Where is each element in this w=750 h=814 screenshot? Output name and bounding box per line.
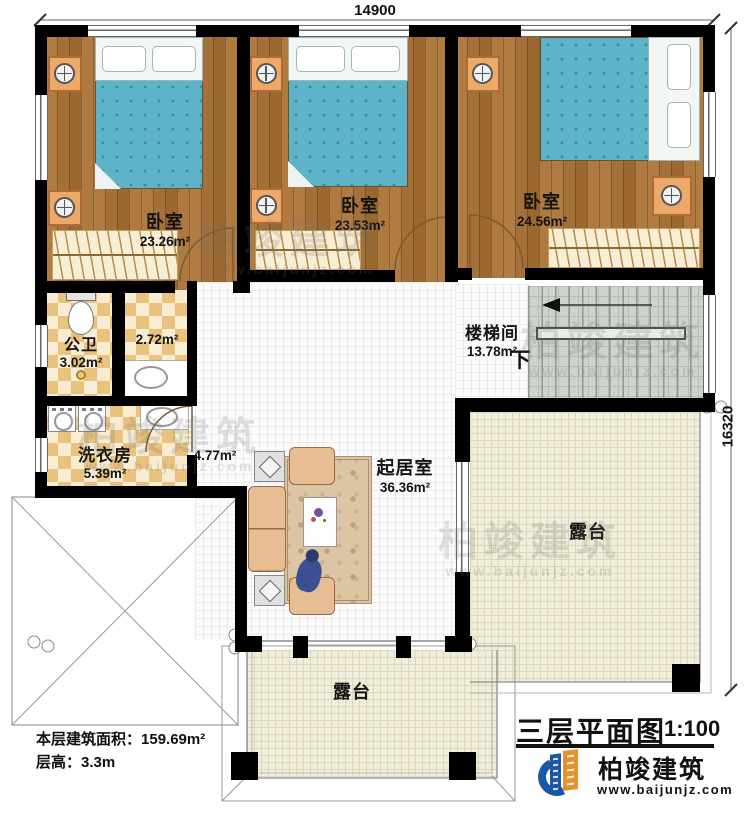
bedroom2-name: 卧室: [310, 196, 410, 218]
wall-living-east: [455, 412, 470, 462]
brand-name: 柏竣建筑: [598, 750, 706, 786]
wardrobe: [548, 228, 700, 268]
watermark-brand: 柏竣建筑: [40, 415, 300, 459]
watermark-url: www.baijunjz.com: [140, 262, 440, 277]
wall-bed1-south: [233, 281, 250, 293]
floor-area-line: 本层建筑面积：159.69m²: [36, 728, 266, 751]
watermark: 柏竣建筑 www.baijunjz.com: [40, 415, 300, 474]
pillow: [296, 46, 345, 72]
floor-area-label: 本层建筑面积：: [36, 731, 141, 748]
window: [88, 25, 196, 37]
window: [35, 95, 48, 180]
title-underline: [516, 744, 714, 748]
lamp-table: [254, 575, 285, 606]
floor-drain-icon: [76, 370, 86, 380]
nightstand: [652, 176, 692, 216]
plant-icon: [472, 63, 493, 84]
watermark-brand: 柏竣建筑: [140, 218, 440, 262]
pillow: [667, 102, 691, 148]
living-room-area: 36.36m²: [355, 480, 455, 496]
wall-bed3-south: [525, 268, 715, 280]
plant-icon: [661, 185, 682, 206]
bathroom-label: 公卫 3.02m²: [51, 336, 111, 371]
pillow: [667, 44, 691, 90]
wall-living-south-pier: [293, 636, 308, 658]
logo-building-blue: [550, 753, 561, 791]
brand-website: www.baijunjz.com: [597, 782, 733, 797]
wall-living-west: [235, 486, 247, 650]
floor-height-value: 3.3m: [81, 754, 115, 771]
floor-info: 本层建筑面积：159.69m² 层高：3.3m: [36, 728, 266, 775]
window: [35, 325, 48, 367]
living-room-name: 起居室: [355, 458, 455, 480]
pillow: [152, 46, 196, 72]
wall-laundry-south: [35, 486, 247, 498]
floor-height-label: 层高：: [36, 754, 81, 771]
nightstand: [466, 56, 500, 92]
wall-living-south-pier: [445, 636, 472, 652]
watermark-brand: 柏竣建筑: [468, 320, 750, 364]
wall-living-south-pier: [396, 636, 411, 658]
floor-plan: 14900 16320 卧室 23.26m² 卧室 23.53m² 卧室 24.…: [0, 0, 750, 814]
terrace-column: [672, 664, 700, 692]
nightstand: [48, 190, 82, 226]
watermark: 柏竣建筑 www.baijunjz.com: [380, 520, 680, 579]
plant-icon: [54, 197, 75, 218]
window: [703, 92, 716, 177]
toilet-icon: [68, 301, 94, 335]
washroom-label: 2.72m²: [127, 332, 187, 348]
watermark-url: www.baijunjz.com: [380, 564, 680, 579]
wall-bed3-south: [455, 268, 472, 280]
dimension-top: 14900: [340, 2, 410, 19]
logo-building-orange: [563, 749, 578, 791]
floor-height-line: 层高：3.3m: [36, 751, 266, 774]
blanket-fold: [95, 163, 121, 189]
floor-area-value: 159.69m²: [141, 731, 205, 748]
wall-living-east: [455, 572, 470, 638]
dimension-right: 16320: [720, 397, 737, 457]
watermark: 柏竣建筑 www.baijunjz.com: [140, 218, 440, 277]
watermark-brand: 柏竣建筑: [380, 520, 680, 564]
washbasin-icon: [134, 366, 168, 389]
wall-washroom-laundry: [35, 396, 197, 406]
wall-living-south-pier: [235, 636, 262, 652]
watermark: 柏竣建筑 www.baijunjz.com: [468, 320, 750, 379]
plan-scale: 1:100: [664, 716, 720, 742]
sofa: [248, 486, 286, 572]
bedroom3-label: 卧室 24.56m²: [492, 192, 592, 230]
plant-icon: [256, 195, 277, 216]
plant-icon: [256, 63, 277, 84]
brand-logo-icon: [538, 750, 592, 804]
watermark-url: www.baijunjz.com: [468, 364, 750, 379]
plant-icon: [54, 63, 75, 84]
flower-decor-icon: [314, 508, 323, 517]
bedroom3-name: 卧室: [492, 192, 592, 214]
bed: [540, 37, 700, 161]
bedroom3-area: 24.56m²: [492, 214, 592, 230]
wall-stair-south: [455, 398, 715, 412]
wall-bath-washroom: [112, 286, 125, 396]
nightstand: [48, 56, 82, 92]
wall-washrooms-east: [187, 281, 197, 406]
window: [521, 25, 631, 37]
wall-bed2-bed3: [445, 25, 458, 282]
washroom-floor: [123, 290, 189, 362]
watermark-url: www.baijunjz.com: [40, 459, 300, 474]
living-room-label: 起居室 36.36m²: [355, 458, 455, 496]
blanket-fold: [288, 161, 314, 187]
pillow: [351, 46, 400, 72]
wall-bed1-south: [35, 281, 175, 293]
bed: [288, 37, 408, 187]
coffee-table: [303, 497, 337, 547]
terrace-bottom-label: 露台: [316, 682, 388, 704]
terrace-column: [449, 752, 476, 780]
pillow: [102, 46, 146, 72]
nightstand: [250, 56, 283, 92]
window: [299, 25, 409, 37]
bed: [95, 37, 203, 189]
bathroom-name: 公卫: [51, 336, 111, 355]
bathroom-area: 3.02m²: [51, 355, 111, 371]
washroom-area: 2.72m²: [127, 332, 187, 348]
